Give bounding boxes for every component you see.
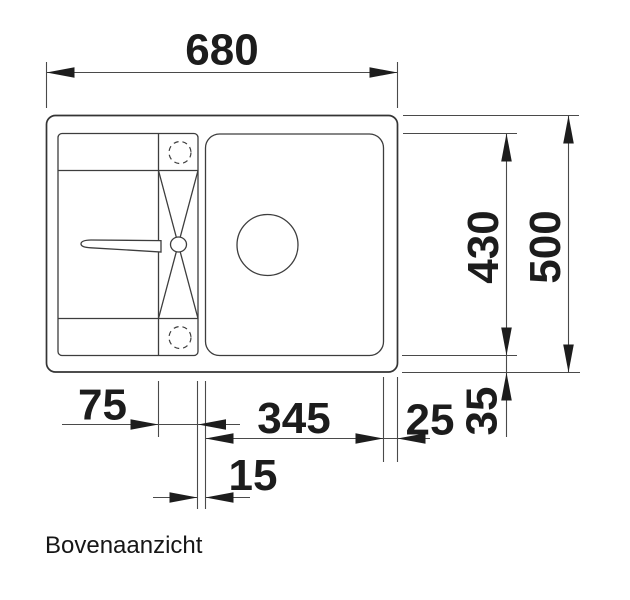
dim-strip-width: 75	[62, 381, 240, 430]
dim-inner-depth: 430	[459, 134, 512, 356]
arrow-500-bottom	[563, 345, 574, 373]
dim-label-strip-bowl-gap: 15	[229, 451, 278, 500]
dim-label-bowl-width: 345	[257, 394, 330, 443]
dim-front-gap: 35	[457, 356, 511, 438]
arrow-75-right-point	[131, 419, 159, 430]
sink-outline-group	[47, 116, 398, 373]
tap-hole-dashed-circle-bottom	[169, 327, 191, 349]
dim-bowl-width: 345	[206, 394, 431, 444]
arrow-75-left-point	[198, 419, 226, 430]
sink-top-view-drawing: 680 500 430 35 75 345 25	[0, 0, 630, 600]
arrow-15-right-point	[170, 492, 198, 503]
arrow-680-right	[370, 67, 398, 78]
dim-overall-depth: 500	[521, 116, 574, 373]
dim-label-right-gap: 25	[406, 396, 455, 445]
arrow-345-right	[356, 433, 384, 444]
arrow-430-top	[501, 134, 512, 162]
dim-label-strip-width: 75	[78, 381, 127, 430]
dim-label-inner-depth: 430	[459, 210, 508, 283]
dim-label-overall-width: 680	[185, 26, 258, 75]
arrow-430-bottom	[501, 328, 512, 356]
main-bowl	[206, 134, 384, 356]
cross-pattern-center-knob	[171, 237, 187, 252]
drain-hole	[237, 215, 298, 276]
drawing-page: 680 500 430 35 75 345 25	[0, 0, 630, 600]
dim-right-gap: 25	[398, 396, 455, 445]
arrow-345-left	[206, 433, 234, 444]
view-caption: Bovenaanzicht	[45, 532, 203, 559]
tap-hole-dashed-circle-top	[169, 142, 191, 164]
dim-overall-width: 680	[47, 26, 398, 78]
dim-label-overall-depth: 500	[521, 210, 570, 283]
dim-label-front-gap: 35	[457, 387, 506, 436]
dim-strip-bowl-gap: 15	[153, 451, 277, 503]
arrow-680-left	[47, 67, 75, 78]
arrow-500-top	[563, 116, 574, 144]
tap-lever	[81, 240, 161, 252]
